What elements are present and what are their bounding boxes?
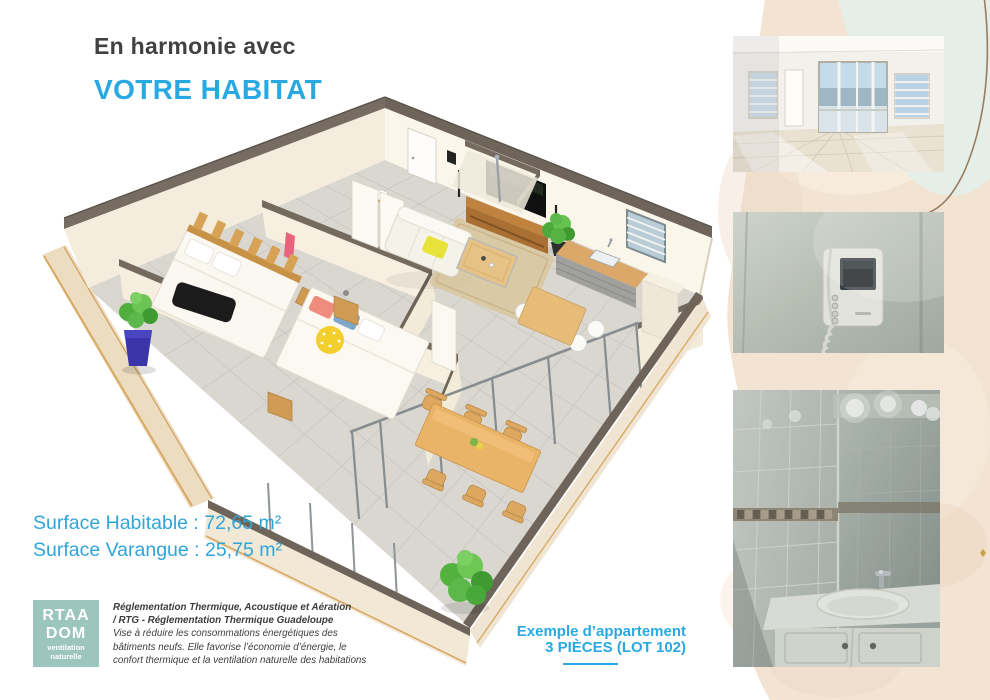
example-line-2: 3 PIÈCES (LOT 102): [450, 640, 686, 656]
legal-line-2: / RTG - Réglementation Thermique Guadelo…: [113, 614, 381, 627]
legal-line-4: bâtiments neufs. Elle favorise l’économi…: [113, 641, 381, 654]
headline-line1: En harmonie avec: [94, 33, 296, 60]
logo-ventilation: ventilation: [47, 643, 85, 652]
logo-rtaa: RTAA: [42, 607, 89, 625]
surface-info: Surface Habitable : 72,65 m² Surface Var…: [33, 510, 282, 564]
photo-video-intercom: [733, 212, 944, 353]
legal-line-1: Réglementation Thermique, Acoustique et …: [113, 601, 381, 614]
logo-naturelle: naturelle: [50, 652, 81, 661]
example-line-1: Exemple d’appartement: [450, 624, 686, 640]
rtaa-dom-logo: RTAA DOM ventilation naturelle: [33, 600, 99, 667]
regulation-paragraph: Réglementation Thermique, Acoustique et …: [113, 601, 381, 667]
headline-line2: VOTRE HABITAT: [94, 74, 322, 106]
surface-varangue: Surface Varangue : 25,75 m²: [33, 537, 282, 564]
photo-bathroom: [733, 390, 940, 667]
legal-line-5: confort thermique et la ventilation natu…: [113, 654, 381, 667]
louver-window-right: [895, 74, 929, 118]
example-underline: [563, 663, 618, 665]
brochure-page: En harmonie avec VOTRE HABITAT Surface H…: [0, 0, 990, 700]
balcony-sliding-door: [819, 62, 887, 132]
apartment-example-label: Exemple d’appartement 3 PIÈCES (LOT 102): [450, 624, 686, 656]
surface-habitable: Surface Habitable : 72,65 m²: [33, 510, 282, 537]
legal-line-3: Vise à réduire les consommations énergét…: [113, 627, 381, 640]
logo-dom: DOM: [46, 625, 86, 643]
photo-apartment-interior: [733, 36, 944, 172]
